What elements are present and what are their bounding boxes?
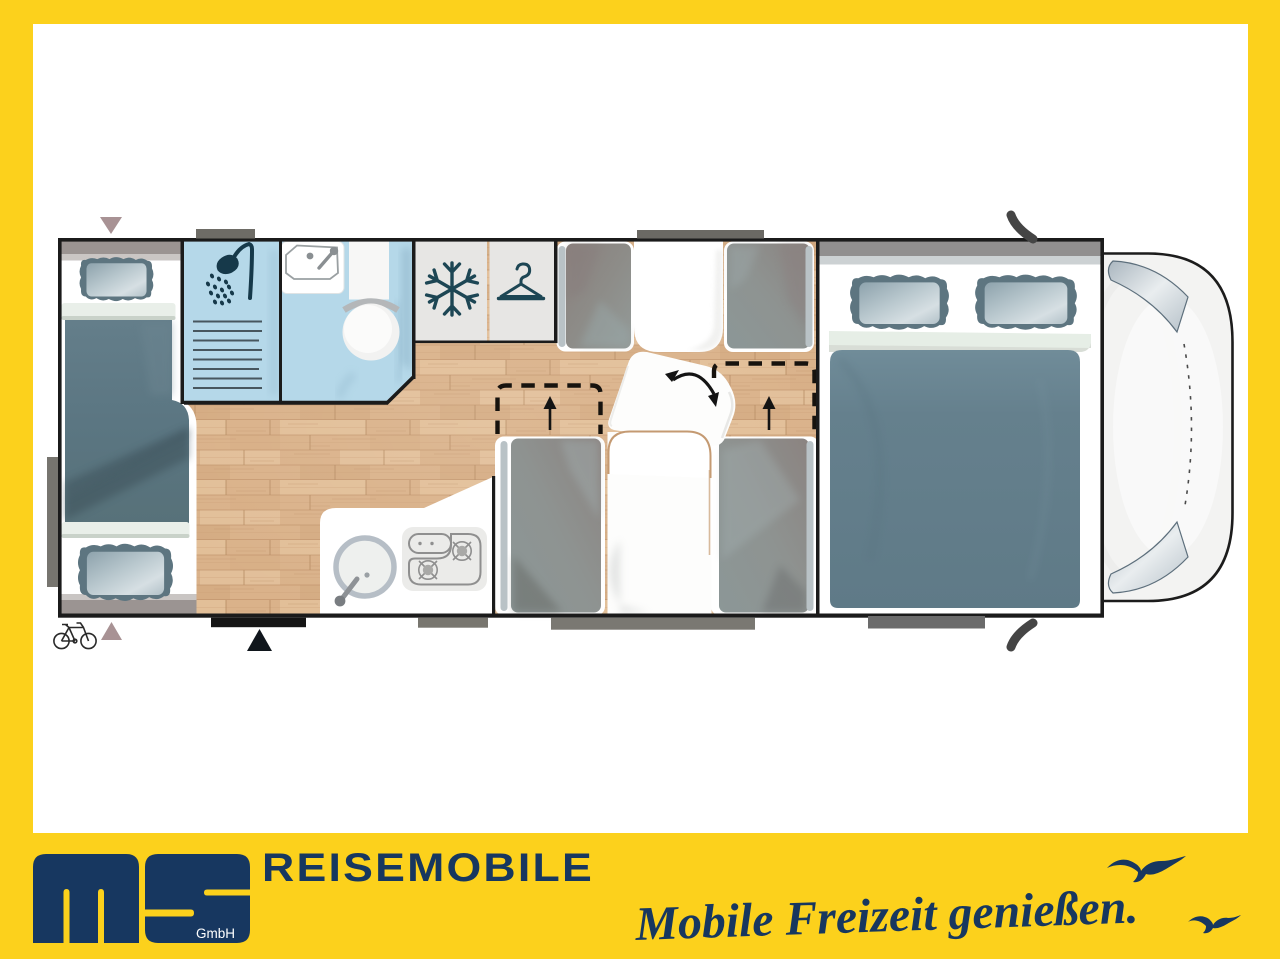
svg-text:GmbH: GmbH [196, 926, 235, 941]
svg-text:REISEMOBILE: REISEMOBILE [262, 846, 594, 890]
